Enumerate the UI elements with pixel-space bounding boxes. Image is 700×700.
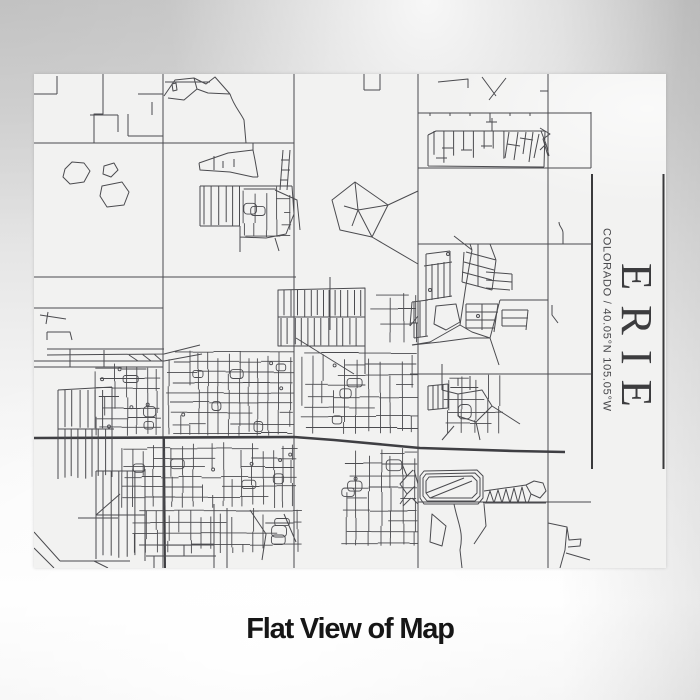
svg-text:ERIE: ERIE	[612, 263, 662, 422]
svg-text:COLORADO / 40.05°N 105.05°W: COLORADO / 40.05°N 105.05°W	[601, 228, 613, 412]
